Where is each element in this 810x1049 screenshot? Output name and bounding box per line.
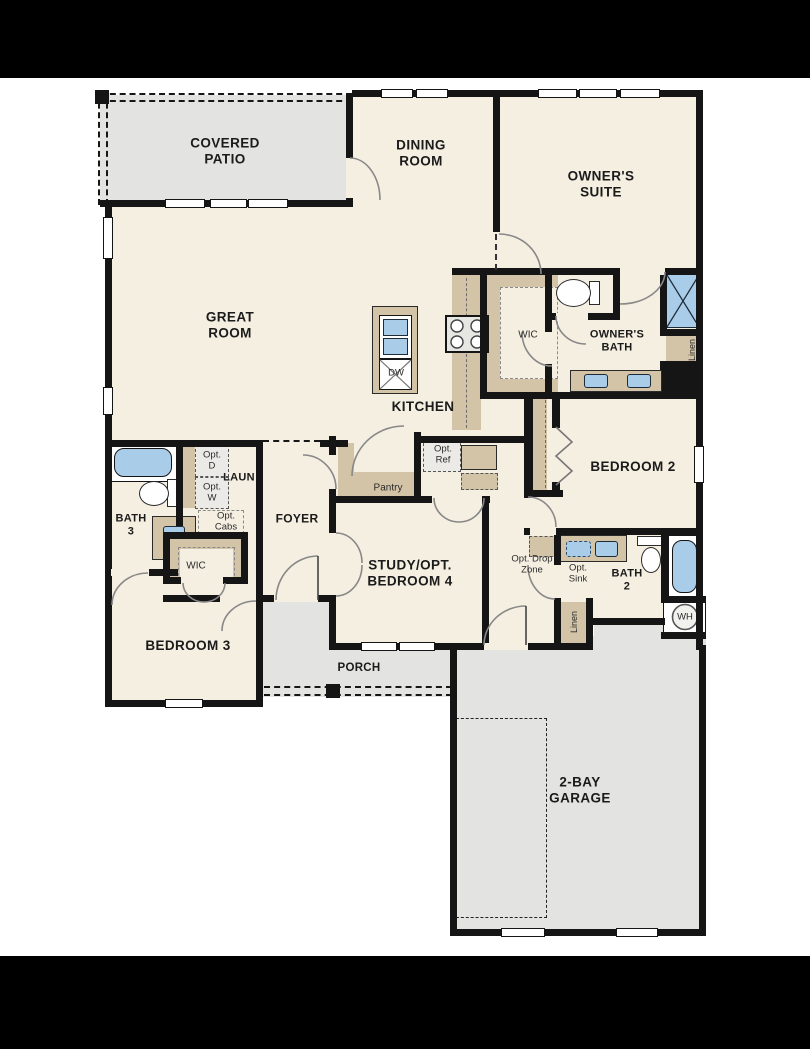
- wall: [661, 535, 668, 601]
- window: [381, 89, 413, 98]
- wall: [450, 645, 457, 936]
- wall: [256, 595, 263, 707]
- wall: [588, 618, 665, 625]
- label-wic-bed3: WIC: [186, 560, 205, 571]
- label-water-heater: WH: [677, 613, 693, 624]
- shower-x: [666, 274, 700, 328]
- wall: [696, 90, 703, 650]
- opt-sink-icon: [566, 541, 591, 557]
- patio-column: [95, 90, 109, 104]
- door-arc: [620, 272, 665, 304]
- sink-icon: [595, 541, 618, 557]
- letterbox-top: [0, 0, 810, 78]
- bed2-closet-rod: [545, 400, 546, 488]
- window: [416, 89, 448, 98]
- label-wic-owner: WIC: [518, 329, 537, 340]
- room-label-dining-room: DINING ROOM: [396, 138, 446, 171]
- wall: [493, 90, 500, 232]
- wall: [176, 440, 183, 526]
- wall: [105, 200, 112, 707]
- room-label-bath2: BATH 2: [612, 568, 643, 595]
- porch-edge-dashed: [264, 694, 452, 696]
- patio-edge-dashed: [100, 100, 352, 102]
- window: [210, 199, 247, 208]
- door-arc: [183, 583, 204, 602]
- door-arc: [303, 455, 336, 489]
- garage-option-dashed-area: [456, 718, 547, 918]
- room-label-great-room: GREAT ROOM: [206, 310, 254, 343]
- door-arc: [336, 533, 362, 563]
- label-linen-hall: Linen: [569, 611, 579, 633]
- label-opt-washer: Opt. W: [203, 482, 221, 503]
- wall: [414, 436, 526, 443]
- door-arc: [434, 498, 459, 522]
- wall: [524, 392, 533, 498]
- window: [103, 217, 113, 259]
- door-gap: [329, 533, 336, 595]
- label-opt-cabs: Opt. Cabs: [215, 511, 237, 532]
- bathtub-icon: [114, 448, 172, 477]
- room-label-bedroom3: BEDROOM 3: [145, 638, 230, 654]
- letterbox-bottom: [0, 956, 810, 1049]
- wall: [524, 490, 563, 497]
- window: [620, 89, 660, 98]
- wall: [480, 268, 487, 399]
- window: [361, 642, 397, 651]
- window: [616, 928, 658, 937]
- wall: [699, 645, 706, 936]
- label-pantry: Pantry: [374, 482, 403, 493]
- wall: [554, 535, 561, 565]
- wall: [552, 396, 560, 428]
- floor-plan: COVERED PATIO DINING ROOM OWNER'S SUITE …: [0, 0, 810, 1049]
- bifold-door-icon: [556, 427, 576, 485]
- door-arc: [459, 498, 484, 522]
- window: [579, 89, 617, 98]
- window: [103, 387, 113, 415]
- laundry-counter: [181, 443, 195, 508]
- sink-basin-icon: [383, 319, 408, 336]
- window: [248, 199, 288, 208]
- room-label-owners-bath: OWNER'S BATH: [590, 329, 644, 356]
- opt-wall-dashed: [495, 234, 497, 270]
- sink-basin-icon: [383, 338, 408, 355]
- door-arc: [204, 583, 225, 602]
- door-arc: [556, 316, 586, 344]
- door-arc: [222, 601, 256, 631]
- room-label-bath3: BATH 3: [116, 513, 147, 540]
- room-label-porch: PORCH: [337, 661, 380, 675]
- garage-door-arc: [484, 606, 526, 645]
- patio-edge-dashed: [106, 93, 108, 205]
- room-label-owners-suite: OWNER'S SUITE: [568, 169, 635, 202]
- door-gap: [530, 528, 556, 535]
- door-arc: [350, 158, 380, 200]
- label-opt-dryer: Opt. D: [203, 450, 221, 471]
- window: [538, 89, 577, 98]
- room-label-garage: 2-BAY GARAGE: [549, 775, 611, 808]
- porch-column: [326, 684, 340, 698]
- label-opt-sink: Opt. Sink: [569, 563, 587, 584]
- label-linen-owner: Linen: [687, 339, 697, 361]
- porch-edge-dashed: [264, 686, 452, 688]
- label-opt-drop-zone: Opt. Drop Zone: [511, 554, 552, 575]
- wall: [450, 929, 706, 936]
- room-label-covered-patio: COVERED PATIO: [190, 136, 260, 169]
- wall: [163, 532, 248, 539]
- nook-counter-opt: [461, 473, 498, 490]
- door-arc: [112, 573, 148, 605]
- kitchen-counter-edge: [466, 278, 467, 428]
- door-arc: [336, 565, 362, 596]
- wall: [661, 596, 706, 603]
- window: [165, 199, 205, 208]
- door-arc: [499, 234, 541, 274]
- wall: [545, 364, 552, 392]
- window: [399, 642, 435, 651]
- room-label-kitchen: KITCHEN: [392, 399, 455, 415]
- window: [165, 699, 203, 708]
- wall: [545, 268, 552, 332]
- label-dishwasher: DW: [388, 369, 404, 380]
- wall: [660, 329, 703, 336]
- window: [694, 446, 704, 483]
- toilet-icon: [641, 547, 661, 573]
- wall: [480, 392, 703, 399]
- label-opt-ref: Opt. Ref: [434, 444, 452, 465]
- toilet-icon: [556, 279, 591, 307]
- sink-icon: [627, 374, 651, 388]
- room-label-foyer: FOYER: [276, 512, 319, 527]
- room-label-study: STUDY/OPT. BEDROOM 4: [367, 558, 452, 591]
- door-arc: [528, 497, 556, 527]
- wall: [660, 361, 703, 368]
- patio-edge-dashed: [100, 93, 352, 95]
- toilet-tank: [637, 536, 664, 546]
- bathtub-icon: [672, 540, 697, 593]
- room-label-laundry: LAUN: [223, 471, 255, 484]
- door-arc: [352, 426, 404, 476]
- wall: [256, 440, 263, 600]
- wall: [554, 643, 593, 650]
- room-label-bedroom2: BEDROOM 2: [590, 459, 675, 475]
- patio-edge-dashed: [98, 93, 100, 205]
- cased-opening-foyer: [263, 440, 320, 447]
- nook-counter: [461, 445, 497, 470]
- front-door-arc: [276, 556, 318, 600]
- sink-icon: [584, 374, 608, 388]
- window: [501, 928, 545, 937]
- toilet-icon: [139, 481, 169, 506]
- wall: [661, 632, 706, 639]
